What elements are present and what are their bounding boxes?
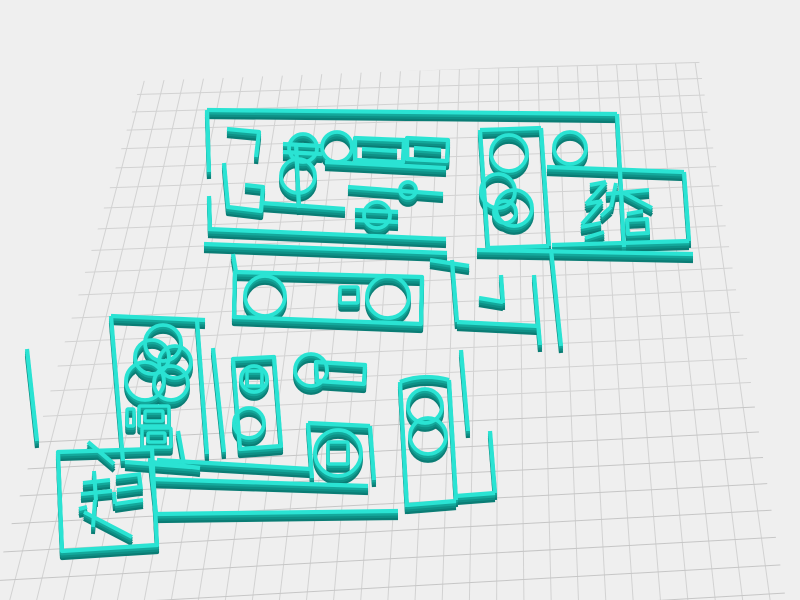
app-window: 3D maze model render 起 终 [0, 0, 800, 600]
maze-3d-render: 3D maze model render [0, 0, 800, 600]
viewport-3d[interactable]: 3D maze model render [0, 0, 800, 600]
